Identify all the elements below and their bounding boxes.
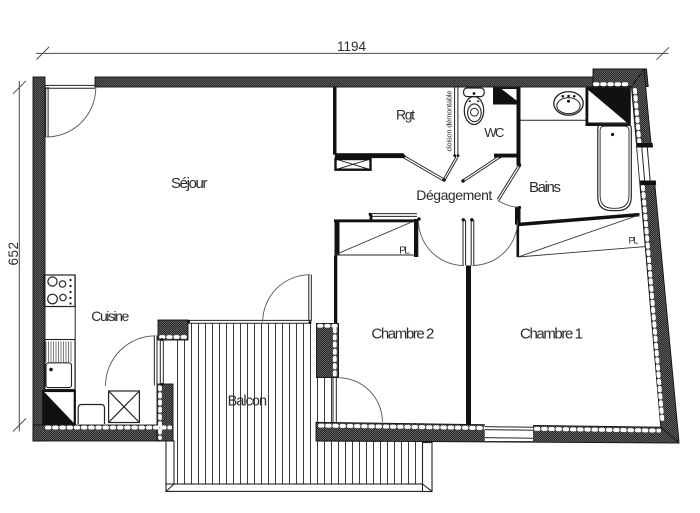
svg-text:Cuisine: Cuisine <box>91 308 129 324</box>
svg-text:652: 652 <box>6 242 21 266</box>
svg-text:Bains: Bains <box>529 179 561 196</box>
svg-text:PL: PL <box>399 246 410 257</box>
svg-text:Séjour: Séjour <box>171 175 208 192</box>
svg-text:WC: WC <box>484 125 504 140</box>
svg-text:Chambre 2: Chambre 2 <box>371 326 434 343</box>
svg-text:PL: PL <box>629 236 639 247</box>
svg-text:cloison démontable: cloison démontable <box>445 91 454 152</box>
svg-text:1194: 1194 <box>337 39 366 54</box>
svg-text:Rgt: Rgt <box>396 107 415 123</box>
svg-text:Chambre 1: Chambre 1 <box>520 326 583 343</box>
svg-text:Balcon: Balcon <box>228 394 268 410</box>
svg-text:Dégagement: Dégagement <box>416 187 492 203</box>
